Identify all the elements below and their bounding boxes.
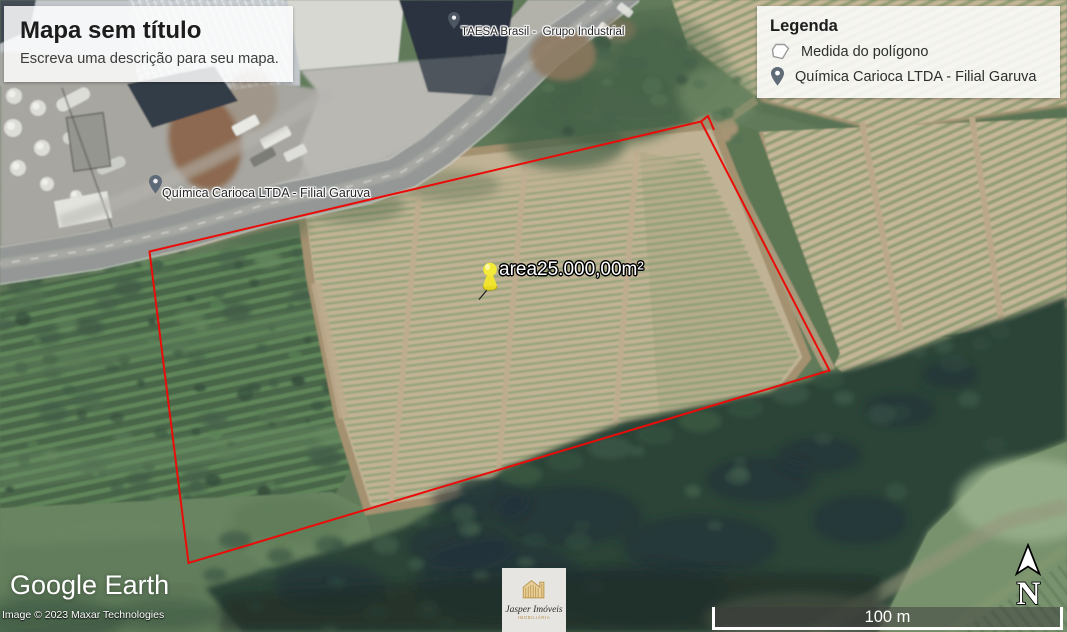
svg-text:N: N bbox=[1017, 576, 1041, 610]
